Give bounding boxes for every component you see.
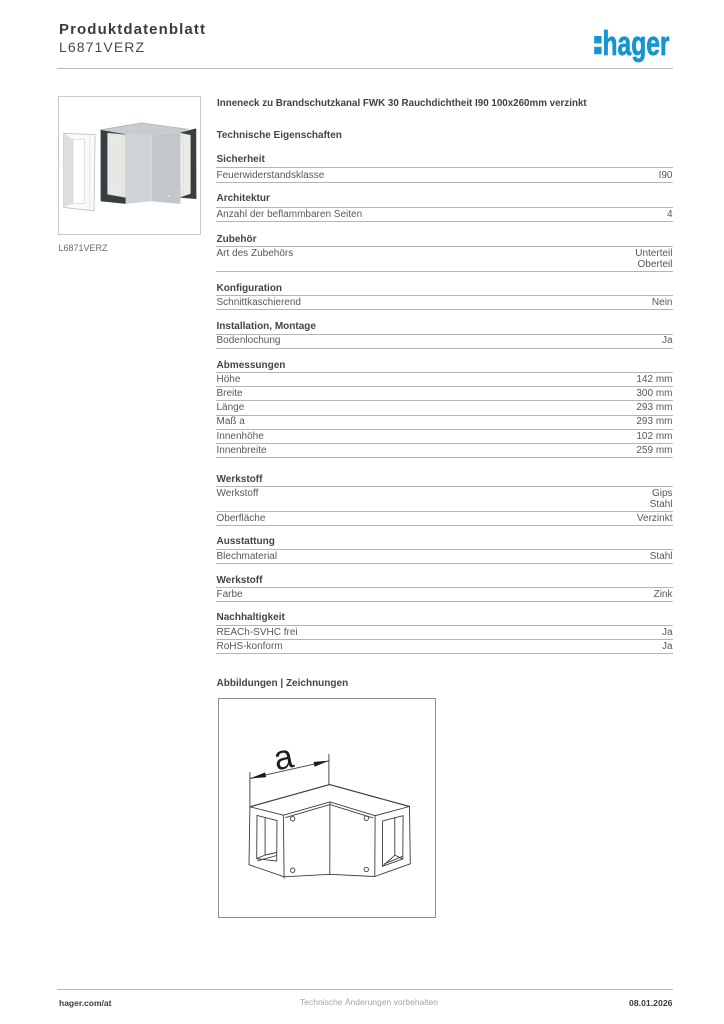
svg-text:hager: hager (603, 26, 670, 63)
svg-text:a: a (270, 737, 296, 778)
